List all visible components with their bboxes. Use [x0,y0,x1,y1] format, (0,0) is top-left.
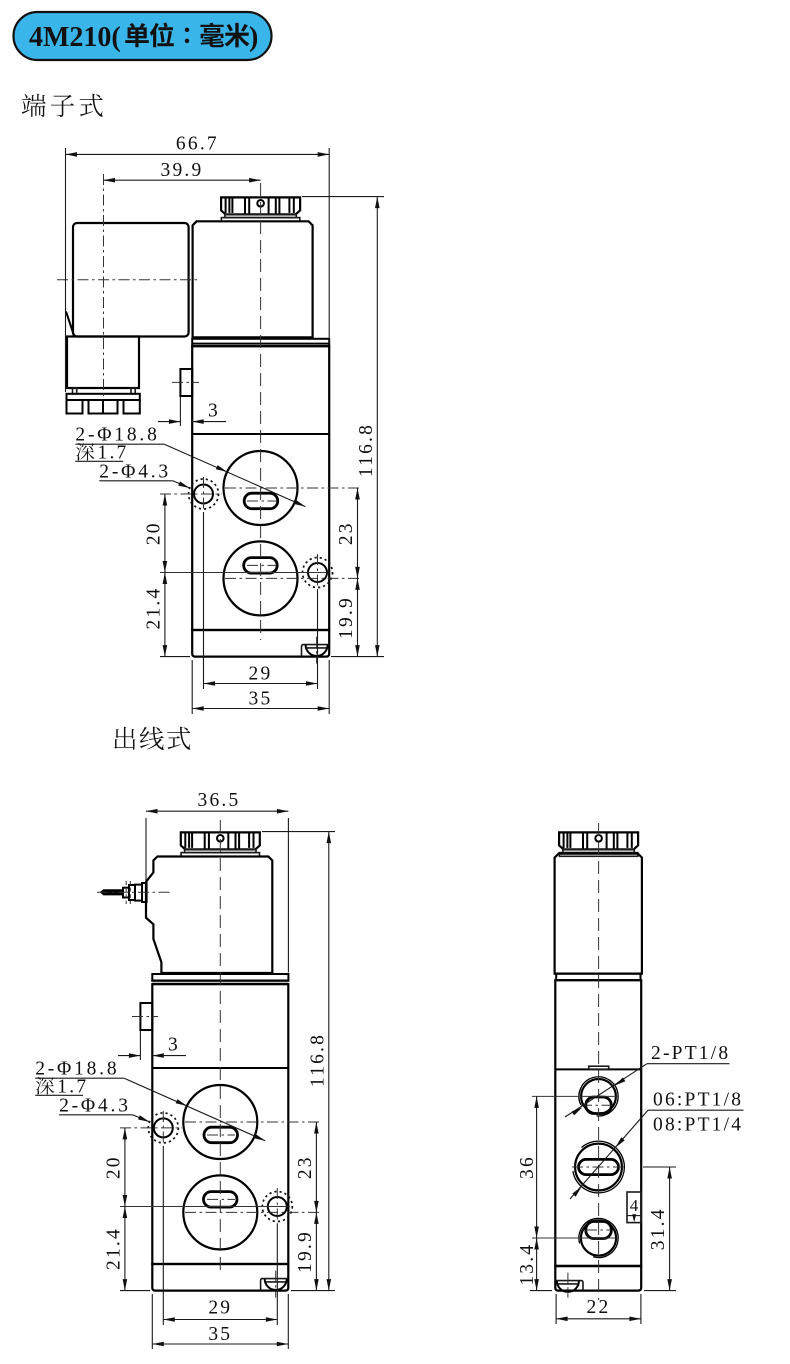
svg-text:1.7: 1.7 [57,1077,88,1098]
svg-text:19.9: 19.9 [336,596,357,639]
svg-text:116.8: 116.8 [307,1033,328,1087]
svg-text:3: 3 [168,1035,180,1056]
svg-text:4: 4 [630,1196,639,1215]
svg-text:1.7: 1.7 [98,443,129,464]
svg-text:29: 29 [208,1298,232,1319]
svg-text:20: 20 [144,521,165,545]
svg-text:35: 35 [208,1324,232,1345]
svg-text:08:PT1/4: 08:PT1/4 [653,1115,743,1136]
svg-text:21.4: 21.4 [144,587,165,630]
svg-text:36: 36 [517,1155,538,1179]
svg-text:06:PT1/8: 06:PT1/8 [653,1090,743,1111]
svg-text:2-Φ4.3: 2-Φ4.3 [59,1096,131,1117]
svg-text:22: 22 [587,1297,611,1318]
svg-text:2-PT1/8: 2-PT1/8 [651,1043,730,1064]
svg-text:29: 29 [249,664,273,685]
svg-text:2-Φ4.3: 2-Φ4.3 [99,462,171,483]
svg-text:66.7: 66.7 [176,134,219,155]
svg-text:20: 20 [104,1155,125,1179]
svg-text:36.5: 36.5 [198,790,241,811]
svg-text:): ) [249,22,258,53]
svg-text:3: 3 [208,401,220,422]
svg-text:23: 23 [295,1155,316,1179]
svg-text:31.4: 31.4 [648,1207,669,1250]
svg-text:23: 23 [336,521,357,545]
svg-text:4M210(: 4M210( [29,22,121,53]
svg-text:35: 35 [249,689,273,710]
svg-text:19.9: 19.9 [295,1230,316,1273]
svg-text:21.4: 21.4 [104,1227,125,1270]
svg-text:116.8: 116.8 [356,423,377,477]
svg-text:13.4: 13.4 [517,1243,538,1286]
svg-text:39.9: 39.9 [161,160,204,181]
